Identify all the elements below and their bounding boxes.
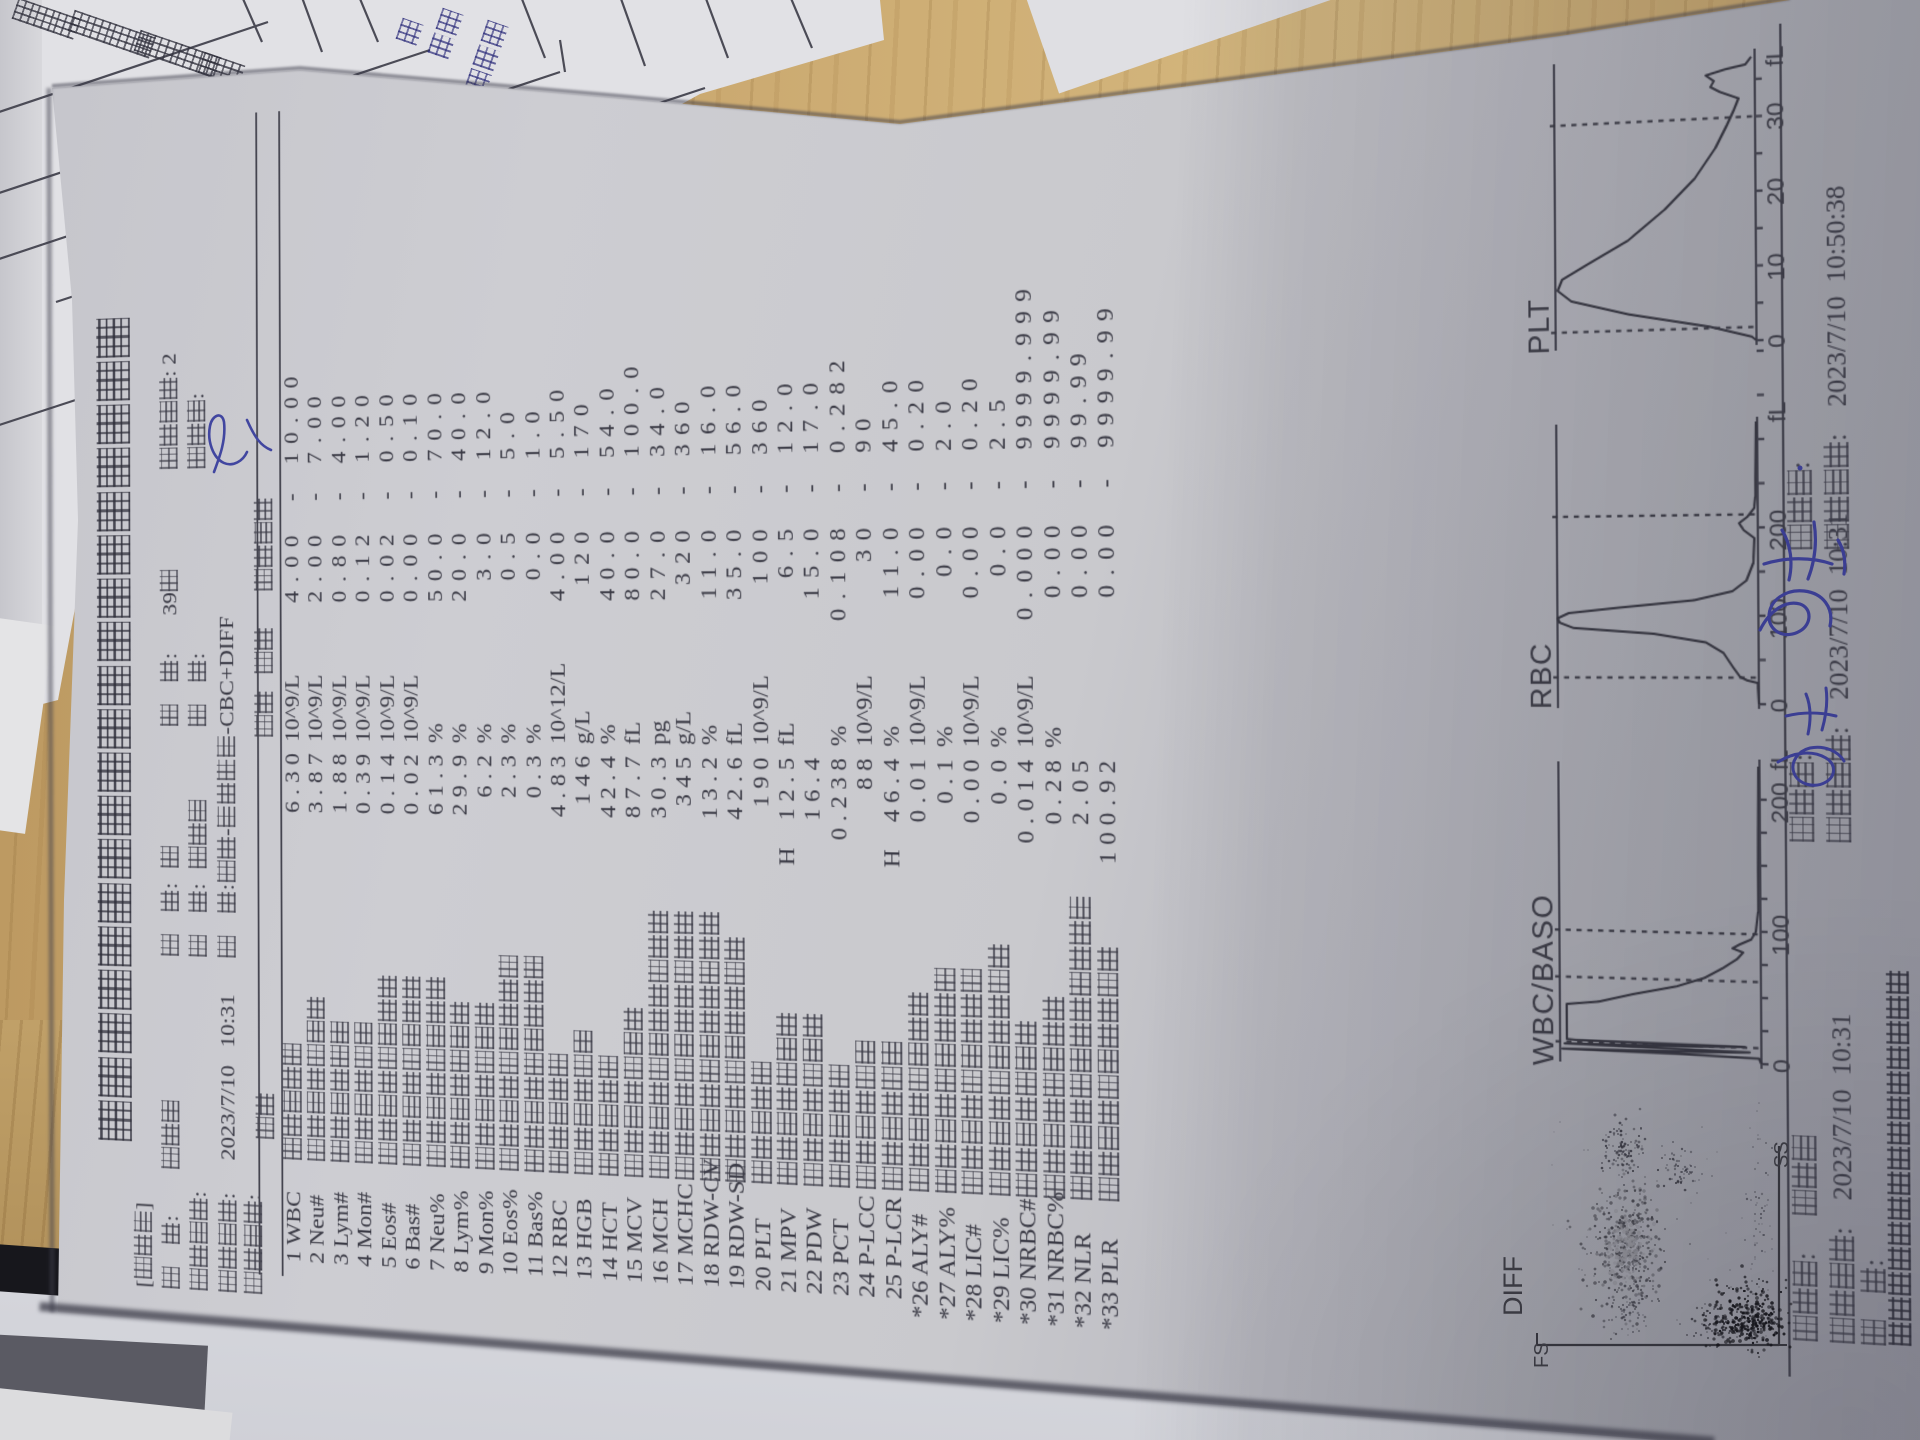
svg-text:DIFF: DIFF — [1498, 1256, 1528, 1316]
svg-text:FS: FS — [1531, 1342, 1553, 1368]
svg-text:SS: SS — [1771, 1141, 1793, 1168]
